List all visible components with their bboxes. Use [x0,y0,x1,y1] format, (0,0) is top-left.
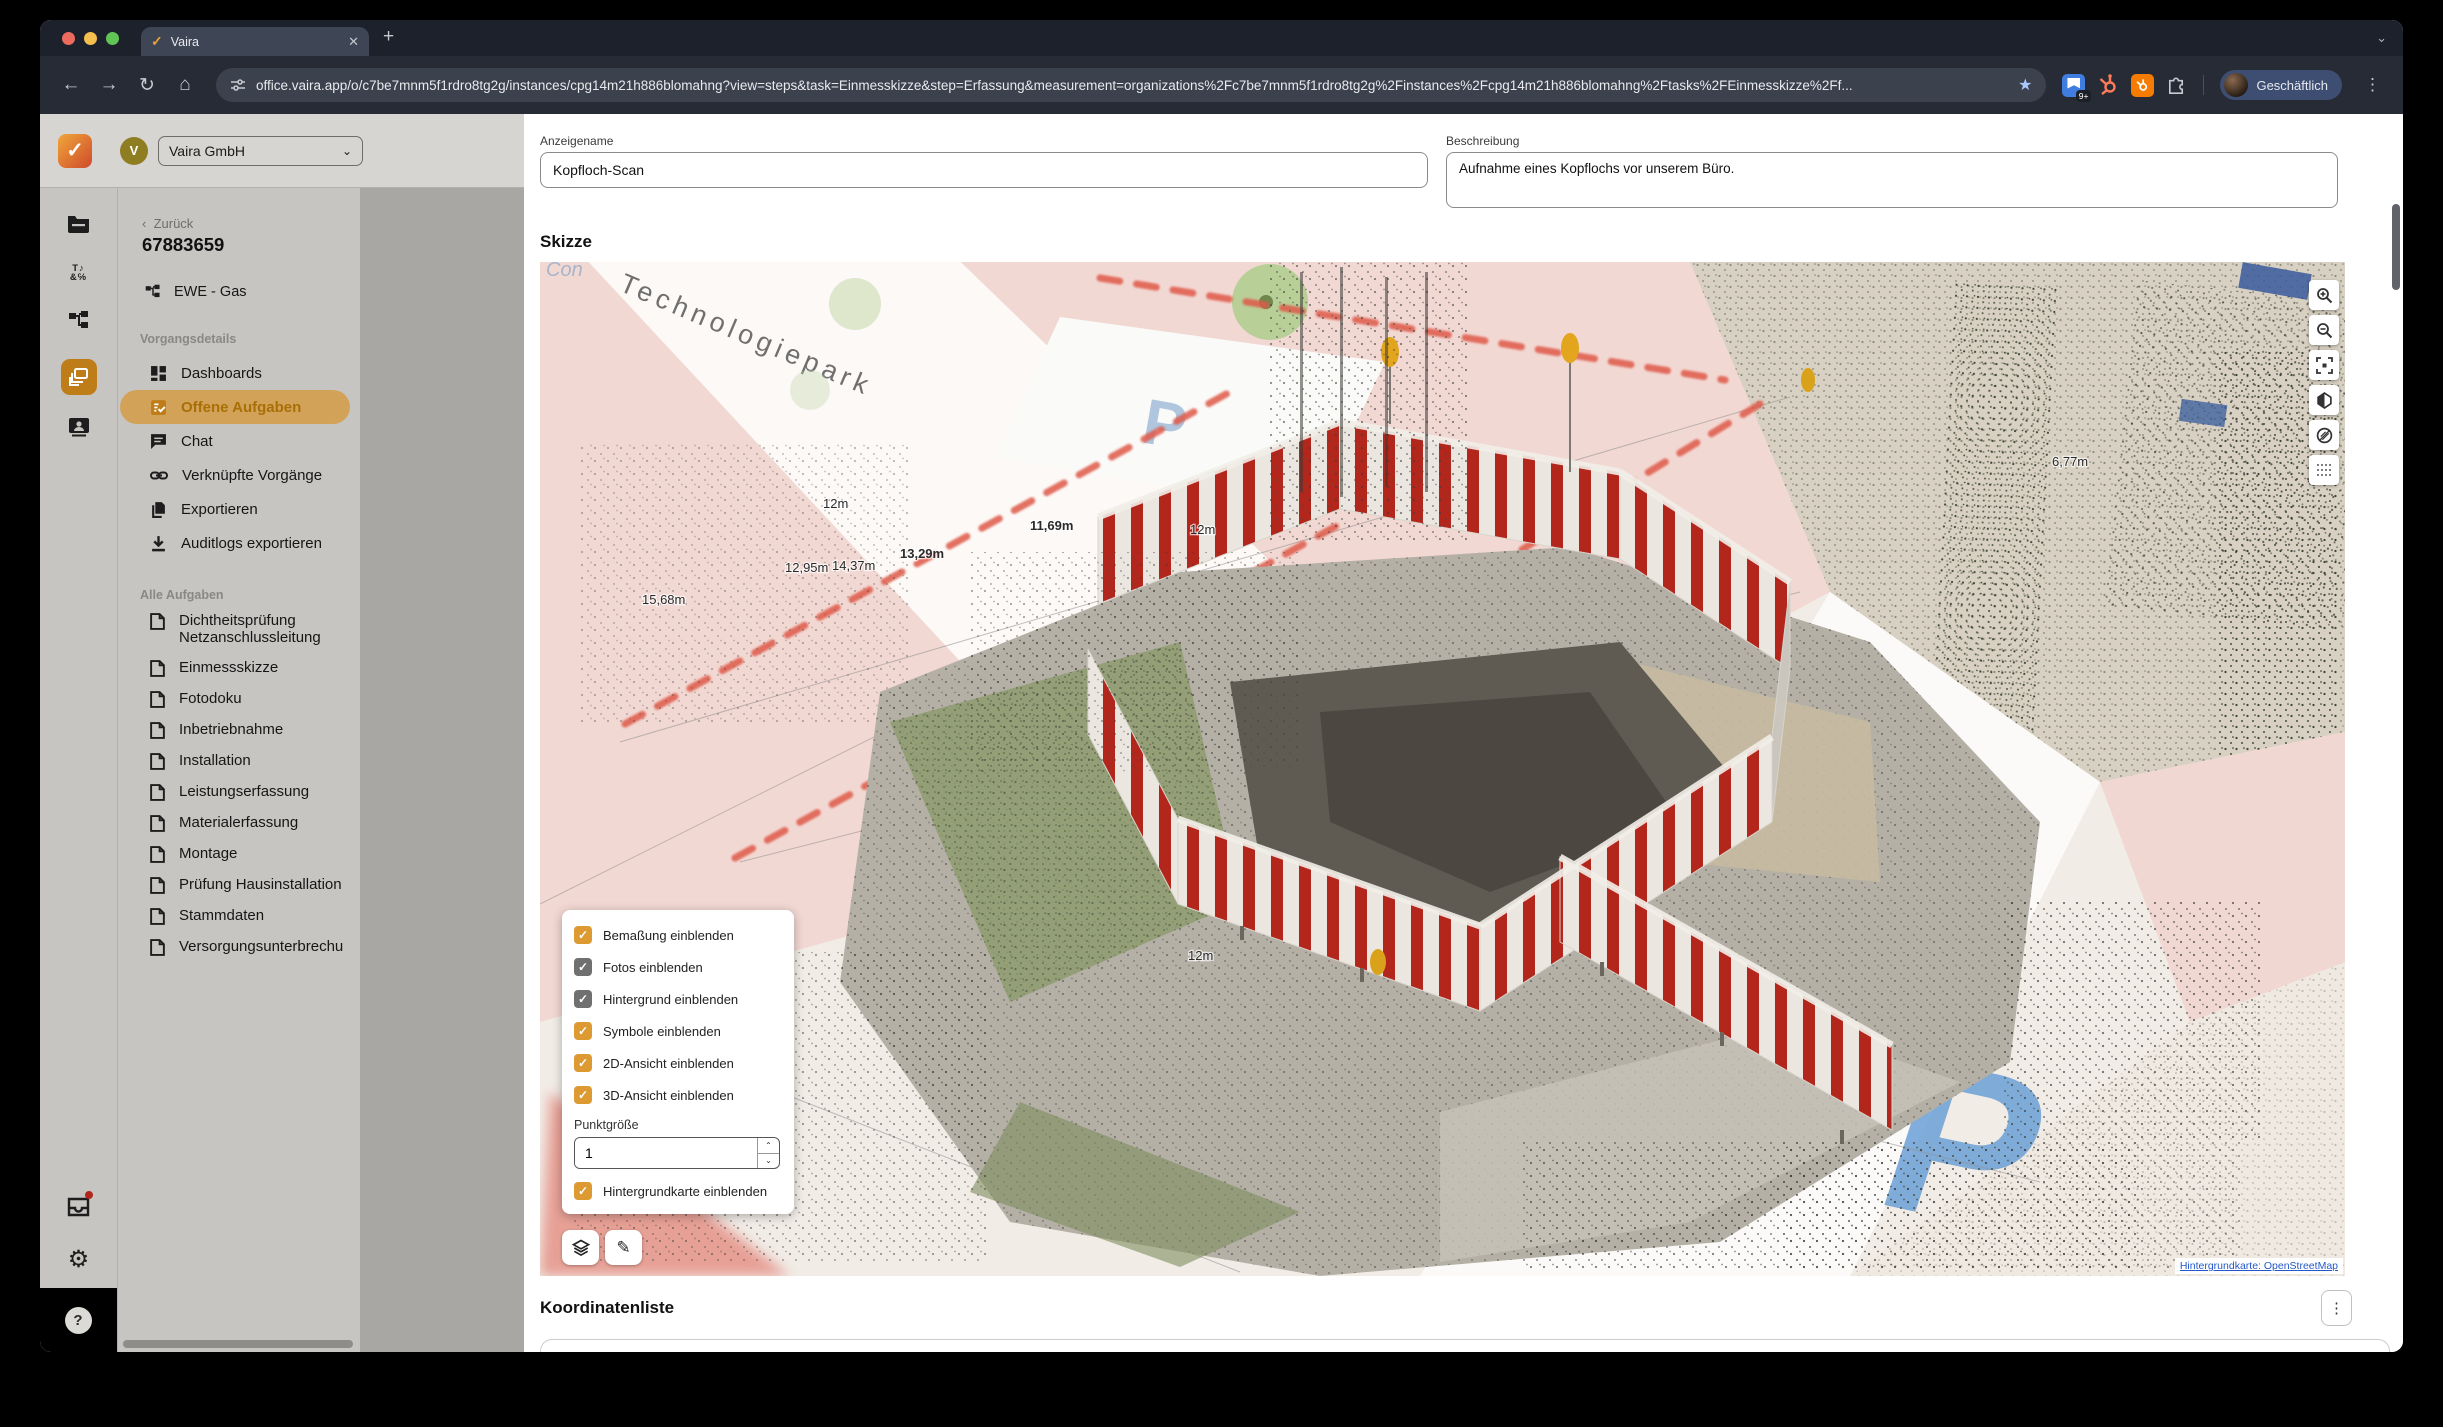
svg-text:14,37m: 14,37m [832,558,875,573]
task-item[interactable]: Einmessskizze [118,659,360,677]
home-button[interactable]: ⌂ [170,74,200,96]
sidebar-item-chat[interactable]: Chat [118,424,360,458]
minimize-window-button[interactable] [84,32,97,45]
stepper-up-icon[interactable]: ⌃ [758,1138,779,1154]
layer-option[interactable]: Hintergrundkarte einblenden [574,1182,780,1200]
svg-text:15,68m: 15,68m [642,592,685,607]
profile-chip[interactable]: Geschäftlich [2220,70,2342,100]
projects-folder-icon[interactable] [67,211,90,235]
point-size-label: Punktgröße [574,1118,780,1132]
tab-search-chevron-icon[interactable]: ⌄ [2376,30,2387,46]
page-vertical-scrollbar[interactable] [2392,204,2400,290]
page-icon [150,613,165,630]
new-tab-button[interactable]: + [383,26,394,48]
map-action-buttons: ✎ [562,1230,642,1265]
contrast-button[interactable] [2309,420,2339,450]
svg-text:11,69m: 11,69m [1030,518,1073,533]
perspective-toggle-button[interactable] [2309,385,2339,415]
edit-pencil-button[interactable]: ✎ [605,1230,642,1265]
window-controls [62,32,119,45]
export-copy-icon [150,501,167,518]
section-title-tasks: Alle Aufgaben [118,588,360,602]
layer-option[interactable]: 3D-Ansicht einblenden [574,1086,780,1104]
map-street-fragment: Con [546,262,583,281]
page-icon [150,753,165,770]
name-field-label: Anzeigename [540,134,1428,148]
reload-button[interactable]: ↻ [132,74,162,97]
org-select[interactable]: Vaira GmbH ⌄ [158,136,363,166]
svg-text:13,29m: 13,29m [900,546,944,561]
layer-option[interactable]: 2D-Ansicht einblenden [574,1054,780,1072]
sidebar-item-offene-aufgaben[interactable]: Offene Aufgaben [120,390,350,424]
contacts-icon[interactable] [68,415,90,439]
checkbox-checked[interactable] [574,990,592,1008]
nav-panel: ‹ Zurück 67883659 EWE - Gas Vorgangsdeta… [118,188,360,1352]
section-title-details: Vorgangsdetails [118,332,360,346]
tab-title: Vaira [171,35,340,49]
map-attribution: Hintergrundkarte: OpenStreetMap [2175,1258,2343,1274]
task-item[interactable]: Dichtheitsprüfung Netzanschlussleitung [118,612,336,646]
open-tasks-icon [150,399,167,416]
sprocket-extension-icon[interactable] [2131,74,2154,97]
help-icon[interactable]: ? [65,1307,92,1334]
page-icon [150,784,165,801]
point-size-stepper[interactable]: ⌃⌄ [574,1137,780,1169]
checkbox-checked[interactable] [574,1022,592,1040]
help-zone: ? [40,1288,117,1352]
page-icon [150,722,165,739]
browser-tab[interactable]: ✓ Vaira ✕ [141,27,369,56]
coords-table: Index Feature x y z Zeitstempel [540,1339,2390,1352]
case-number: 67883659 [118,234,360,256]
vaira-favicon-icon: ✓ [151,33,163,50]
browser-toolbar: ← → ↻ ⌂ office.vaira.app/o/c7be7mnm5f1rd… [40,56,2403,114]
workflow-tree-icon[interactable] [68,309,90,333]
link-icon [150,467,168,484]
back-button[interactable]: ← [56,74,86,96]
org-avatar[interactable]: V [120,137,148,165]
sketch-viewer[interactable]: Con Technologiepark P P [540,262,2345,1276]
chevron-down-icon: ⌄ [342,144,352,158]
task-item[interactable]: Installation [118,752,360,770]
instances-active-icon[interactable] [61,359,97,395]
extension-badge: 9+ [2076,90,2092,102]
forward-button[interactable]: → [94,74,124,96]
checkbox-checked[interactable] [574,1086,592,1104]
checkbox-checked[interactable] [574,958,592,976]
tab-close-icon[interactable]: ✕ [348,34,359,50]
task-item[interactable]: Stammdaten [118,907,360,925]
url-text[interactable]: office.vaira.app/o/c7be7mnm5f1rdro8tg2g/… [256,78,2008,93]
sketch-title: Skizze [540,232,2403,252]
map-tools [2309,280,2339,485]
dashboard-icon [150,365,167,382]
page-icon [150,939,165,956]
address-bar[interactable]: office.vaira.app/o/c7be7mnm5f1rdro8tg2g/… [216,68,2046,102]
toolbar-divider [2203,75,2204,95]
point-size-grid-button[interactable] [2309,455,2339,485]
pointcloud-scene: Con Technologiepark P P [540,262,2345,1276]
task-item[interactable]: Fotodoku [118,690,360,708]
download-icon [150,535,167,552]
avatar [2224,73,2248,97]
extension-icon[interactable]: 9+ [2062,74,2085,97]
layers-button[interactable] [562,1230,599,1265]
page: ✓ V Vaira GmbH ⌄ T♪&℅ ⚙ ? [40,114,2403,1352]
stepper-down-icon[interactable]: ⌄ [758,1154,779,1169]
site-settings-icon[interactable] [230,77,246,93]
sidebar: ✓ V Vaira GmbH ⌄ T♪&℅ ⚙ ? [40,114,524,1352]
zoom-out-button[interactable] [2309,315,2339,345]
sidebar-item-auditlogs[interactable]: Auditlogs exportieren [118,526,360,560]
checkbox-checked[interactable] [574,1054,592,1072]
tab-strip: ✓ Vaira ✕ + ⌄ [40,20,2403,56]
notification-dot [85,1191,93,1199]
extensions-area: 9+ Geschäftlich ⋮ [2062,70,2387,100]
page-icon [150,691,165,708]
hubspot-icon[interactable] [2097,74,2119,96]
task-item[interactable]: Montage [118,845,360,863]
svg-text:12m: 12m [823,496,848,511]
task-item[interactable]: Inbetriebnahme [118,721,360,739]
description-field[interactable]: Aufnahme eines Kopflochs vor unserem Bür… [1446,152,2338,208]
inbox-tray-icon[interactable] [67,1195,90,1219]
page-icon [150,877,165,894]
svg-text:6,77m: 6,77m [2052,454,2088,469]
sidebar-item-verknuepfte-vorgaenge[interactable]: Verknüpfte Vorgänge [118,458,360,492]
sidebar-item-exportieren[interactable]: Exportieren [118,492,360,526]
checkbox-checked[interactable] [574,926,592,944]
zoom-in-button[interactable] [2309,280,2339,310]
bookmark-star-icon[interactable]: ★ [2018,75,2032,95]
browser-menu-icon[interactable]: ⋮ [2364,75,2381,95]
maximize-window-button[interactable] [106,32,119,45]
layer-option[interactable]: Symbole einblenden [574,1022,780,1040]
svg-text:12m: 12m [1190,522,1215,537]
coords-title: Koordinatenliste [540,1298,674,1318]
layer-option[interactable]: Hintergrund einblenden [574,990,780,1008]
browser-window: ✓ Vaira ✕ + ⌄ ← → ↻ ⌂ office.vaira.app/o… [40,20,2403,1352]
icon-rail: T♪&℅ ⚙ ? [40,188,118,1352]
page-icon [150,908,165,925]
main-content: Anzeigename Beschreibung Aufnahme eines … [524,114,2403,1352]
extensions-puzzle-icon[interactable] [2166,75,2187,96]
checkbox-checked[interactable] [574,1182,592,1200]
osm-link[interactable]: Hintergrundkarte: OpenStreetMap [2180,1260,2338,1272]
close-window-button[interactable] [62,32,75,45]
layer-option[interactable]: Bemaßung einblenden [574,926,780,944]
sidebar-item-dashboards[interactable]: Dashboards [118,356,360,390]
name-field[interactable] [540,152,1428,188]
vaira-logo-icon[interactable]: ✓ [58,134,92,168]
chat-icon [150,433,167,450]
page-icon [150,815,165,832]
description-field-label: Beschreibung [1446,134,2338,148]
page-icon [150,846,165,863]
org-select-value: Vaira GmbH [169,143,245,159]
pencil-icon: ✎ [616,1238,630,1258]
svg-text:12m: 12m [1188,948,1213,963]
sidebar-gap [360,188,524,1352]
layer-option[interactable]: Fotos einblenden [574,958,780,976]
task-item[interactable]: Leistungserfassung [118,783,360,801]
settings-gear-icon[interactable]: ⚙ [68,1245,90,1274]
coords-menu-button[interactable]: ⋮ [2321,1290,2352,1326]
sidebar-horizontal-scrollbar[interactable] [123,1340,353,1348]
profile-name: Geschäftlich [2256,78,2328,93]
task-item[interactable]: Versorgungsunterbrechung [118,938,344,956]
fit-view-button[interactable] [2309,350,2339,380]
back-link[interactable]: ‹ Zurück [118,216,360,231]
point-size-input[interactable] [575,1138,757,1168]
layer-options-panel: Bemaßung einblenden Fotos einblenden Hin… [562,910,794,1214]
task-item[interactable]: Prüfung Hausinstallation [118,876,360,894]
process-tree-icon [144,284,162,300]
task-item[interactable]: Materialerfassung [118,814,360,832]
page-icon [150,660,165,677]
stepper-arrows[interactable]: ⌃⌄ [757,1138,779,1168]
case-type[interactable]: EWE - Gas [118,284,360,300]
symbols-icon[interactable]: T♪&℅ [70,261,87,285]
svg-text:12,95m: 12,95m [785,560,828,575]
app-header: ✓ V Vaira GmbH ⌄ [40,114,524,188]
